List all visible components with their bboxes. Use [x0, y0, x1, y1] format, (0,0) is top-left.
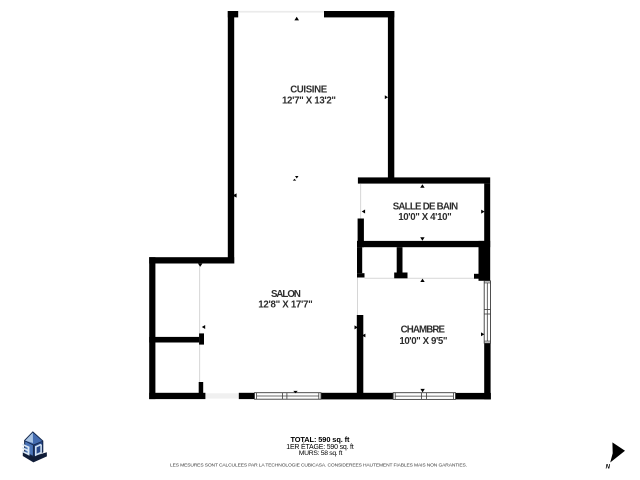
svg-text:SALON: SALON [271, 289, 301, 300]
svg-text:12'8" X 17'7": 12'8" X 17'7" [258, 300, 312, 311]
svg-text:CHAMBRE: CHAMBRE [401, 325, 446, 336]
svg-text:MURS: 58 sq. ft: MURS: 58 sq. ft [299, 450, 343, 457]
svg-text:10'0" X 4'10": 10'0" X 4'10" [398, 212, 451, 223]
svg-text:CUISINE: CUISINE [290, 84, 328, 95]
svg-text:10'0" X 9'5": 10'0" X 9'5" [399, 336, 447, 347]
svg-text:SALLE DE BAIN: SALLE DE BAIN [393, 202, 458, 213]
svg-text:N: N [606, 464, 611, 470]
svg-text:TOTAL: 590 sq. ft: TOTAL: 590 sq. ft [291, 435, 351, 444]
svg-text:LES MESURES SONT CALCULEES PAR: LES MESURES SONT CALCULEES PAR LA TECHNO… [170, 462, 467, 468]
svg-text:12'7" X 13'2": 12'7" X 13'2" [282, 96, 336, 107]
